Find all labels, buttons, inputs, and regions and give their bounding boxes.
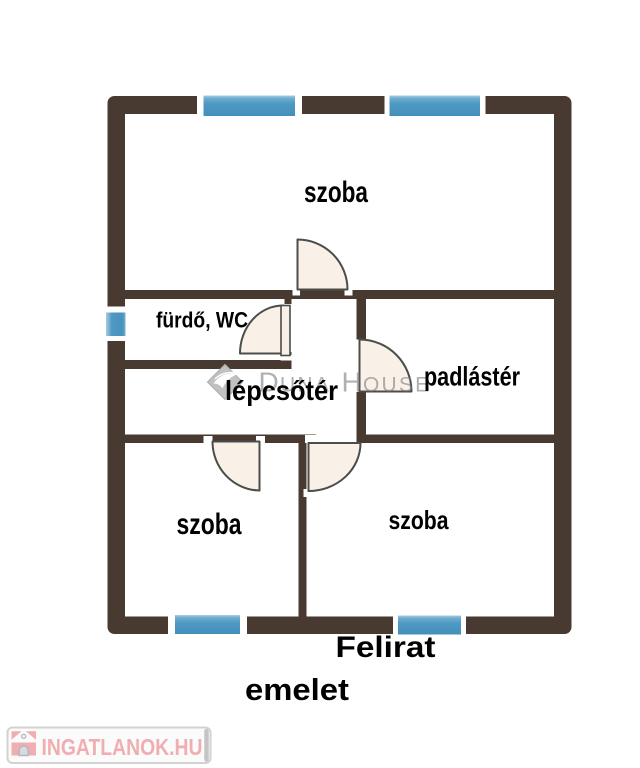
svg-text:szoba: szoba — [304, 176, 368, 209]
svg-text:INGATLANOK.HU: INGATLANOK.HU — [42, 734, 203, 760]
svg-text:padlástér: padlástér — [424, 362, 520, 392]
svg-text:lépcsőtér: lépcsőtér — [225, 375, 338, 406]
svg-text:Felirat: Felirat — [336, 631, 436, 664]
svg-text:H: H — [342, 367, 362, 398]
svg-text:fürdő, WC: fürdő, WC — [156, 308, 248, 333]
svg-text:szoba: szoba — [177, 508, 242, 541]
svg-text:emelet: emelet — [245, 672, 349, 707]
svg-text:OUSE: OUSE — [363, 374, 431, 397]
svg-text:szoba: szoba — [389, 505, 449, 535]
